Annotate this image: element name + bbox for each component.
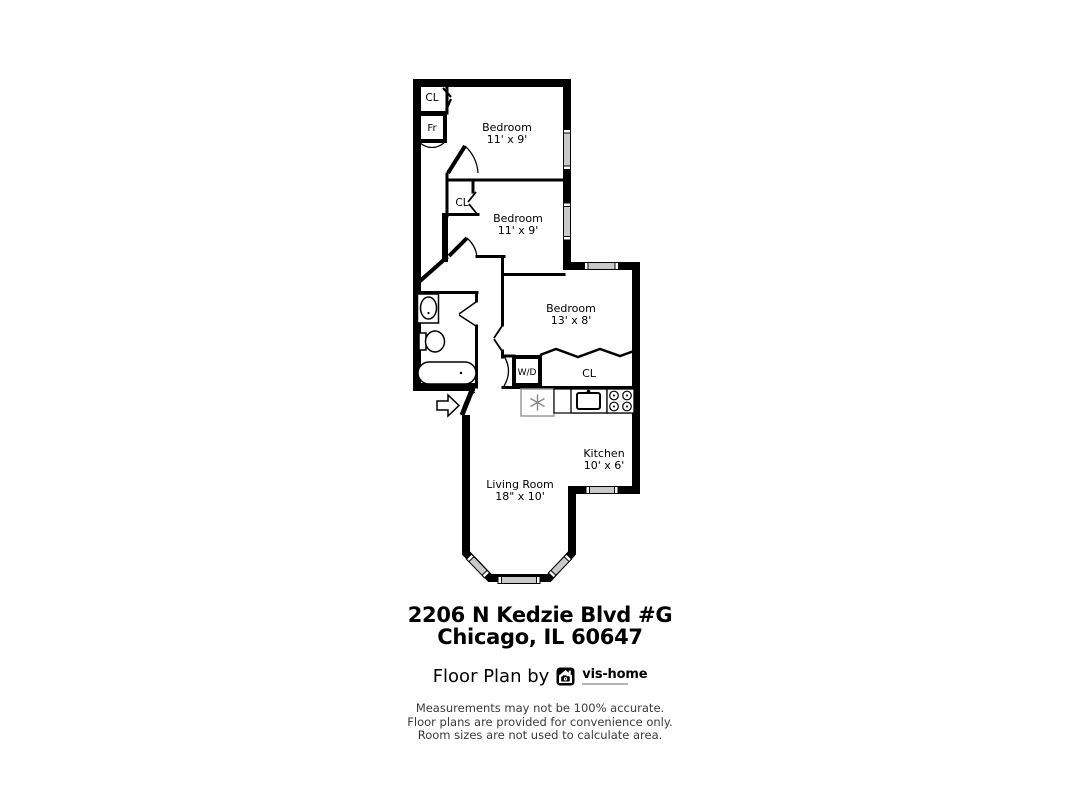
kitchen-sink-icon [571,389,607,413]
entry-arrow-icon [437,395,459,416]
bedroom3-door [494,326,502,351]
fridge-closet-door-arc [420,143,444,148]
living-room-dims: 18" x 10' [495,490,545,503]
kitchen-window [586,487,618,494]
bay-window-bottom [498,577,540,584]
vis-home-logotype: vis-home [582,668,647,685]
address-line1: 2206 N Kedzie Blvd #G [0,604,1080,626]
toilet-icon [419,331,445,352]
vis-home-logo-icon [556,667,575,686]
disclaimer-line3: Room sizes are not used to calculate are… [0,729,1080,743]
bay-window-left [466,554,489,578]
bedroom1-dims: 11' x 9' [487,133,528,146]
bedroom2-closet-label: CL [455,197,468,209]
hall-closet-label: CL [582,367,597,380]
disclaimer-line1: Measurements may not be 100% accurate. [0,702,1080,716]
bathtub-icon [418,362,476,384]
washer-dryer-door-arc [504,356,509,386]
bedroom2-dims: 11' x 9' [498,224,539,237]
bedroom2-window [564,203,571,240]
vis-home-brand-text: vis-home [582,668,647,681]
byline-text: Floor Plan by [433,666,550,687]
bay-window-right [548,554,571,578]
disclaimer-line2: Floor plans are provided for convenience… [0,716,1080,730]
property-address: 2206 N Kedzie Blvd #G Chicago, IL 60647 [0,604,1080,648]
stove-icon [607,389,634,413]
disclaimer: Measurements may not be 100% accurate. F… [0,702,1080,743]
refrigerator-icon [521,389,554,416]
exterior-walls [417,83,636,578]
bathroom-sink-icon [418,294,439,323]
floor-plan-drawing: Bedroom 11' x 9' Bedroom 11' x 9' Bedroo… [390,60,660,600]
kitchen-appliances [521,389,634,416]
bedroom2-closet-bifold-door [468,192,477,214]
floor-plan-byline: Floor Plan by vis-home [0,664,1080,688]
bedroom3-window [585,263,619,270]
floor-plan-page: Bedroom 11' x 9' Bedroom 11' x 9' Bedroo… [0,0,1080,810]
room-labels: Bedroom 11' x 9' Bedroom 11' x 9' Bedroo… [425,92,624,503]
vis-home-tagline [582,683,628,685]
fridge-closet-label: Fr [427,123,437,134]
kitchen-dims: 10' x 6' [584,459,625,472]
bedroom3-dims: 13' x 8' [551,314,592,327]
bathroom-door [459,302,476,326]
entry-door [462,390,475,415]
bedroom1-door [448,146,478,173]
closet-top-label: CL [425,92,438,104]
washer-dryer-label: W/D [518,368,537,378]
hall-closet-slider-door [540,349,634,357]
windows [466,130,618,584]
bedroom1-window [564,130,571,170]
address-line2: Chicago, IL 60647 [0,626,1080,648]
bedroom2-door [449,238,477,257]
